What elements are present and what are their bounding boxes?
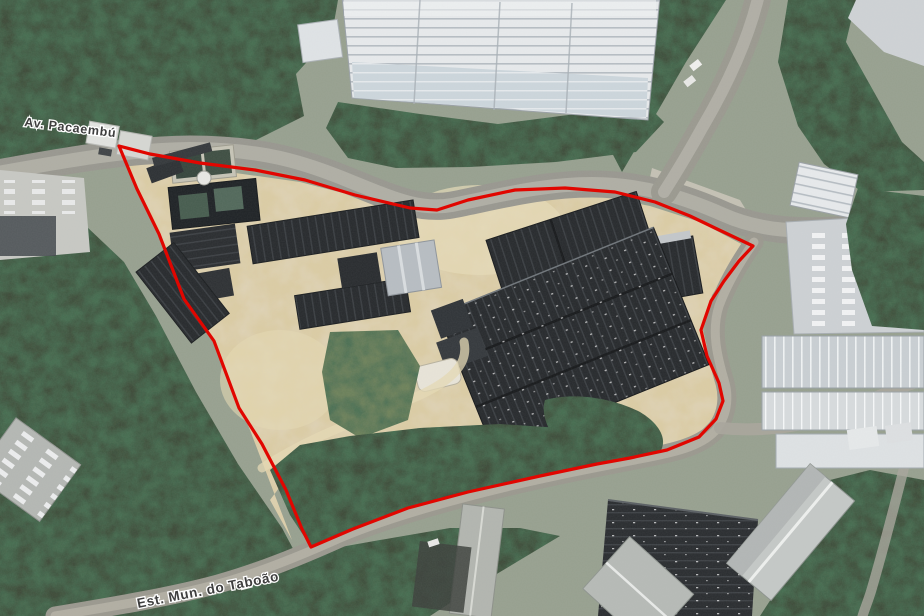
photo-grain-overlay — [0, 0, 924, 616]
satellite-map-canvas[interactable]: Av. Pacaembú Est. Mun. do Taboão — [0, 0, 924, 616]
